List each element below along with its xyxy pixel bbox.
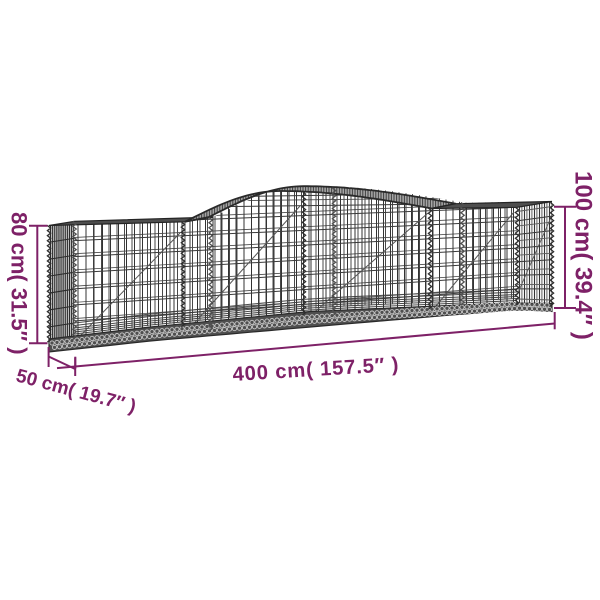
svg-text:100 cm( 39.4″ ): 100 cm( 39.4″ ) — [570, 171, 597, 340]
svg-text:80 cm( 31.5″ ): 80 cm( 31.5″ ) — [7, 212, 32, 355]
